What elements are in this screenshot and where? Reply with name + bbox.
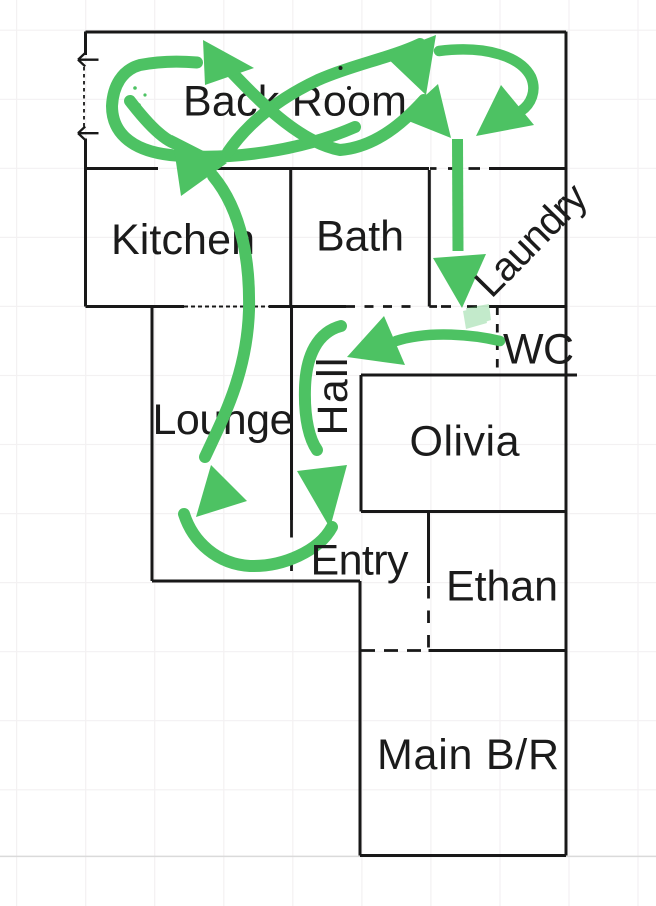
svg-text:Back Room: Back Room [183,78,407,126]
svg-text:Bath: Bath [316,212,404,260]
svg-text:Entry: Entry [311,536,410,584]
svg-text:Hall: Hall [309,358,357,436]
svg-text:WC: WC [503,326,574,374]
svg-text:Ethan: Ethan [446,563,558,611]
svg-text:Main B/R: Main B/R [377,731,559,779]
svg-text:Olivia: Olivia [410,417,520,465]
